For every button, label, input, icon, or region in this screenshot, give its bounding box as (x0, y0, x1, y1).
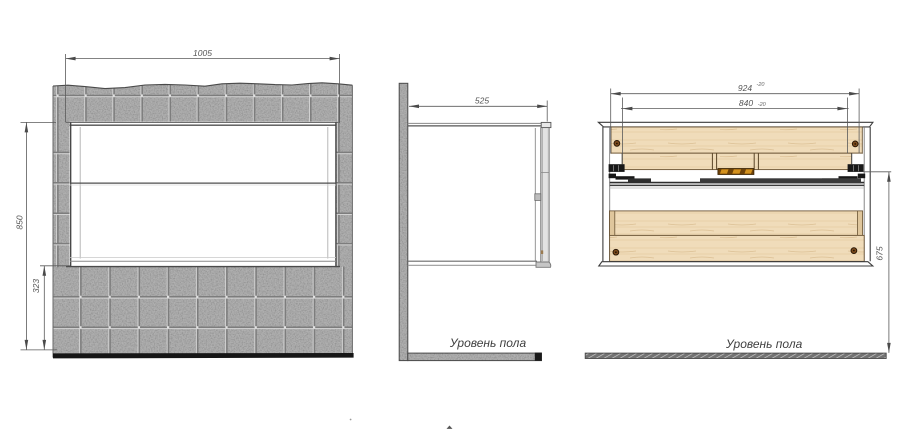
svg-text:675: 675 (875, 246, 885, 260)
svg-text:924: 924 (738, 83, 752, 93)
svg-text:1005: 1005 (193, 48, 212, 58)
svg-text:840: 840 (739, 98, 753, 108)
svg-text:Уровень пола: Уровень пола (725, 337, 803, 351)
svg-text:Уровень пола: Уровень пола (449, 336, 527, 350)
svg-text:-20: -20 (758, 102, 767, 108)
svg-text:-20: -20 (757, 82, 766, 88)
svg-text:525: 525 (475, 96, 489, 106)
svg-text:323: 323 (31, 279, 41, 293)
svg-text:850: 850 (15, 215, 25, 229)
